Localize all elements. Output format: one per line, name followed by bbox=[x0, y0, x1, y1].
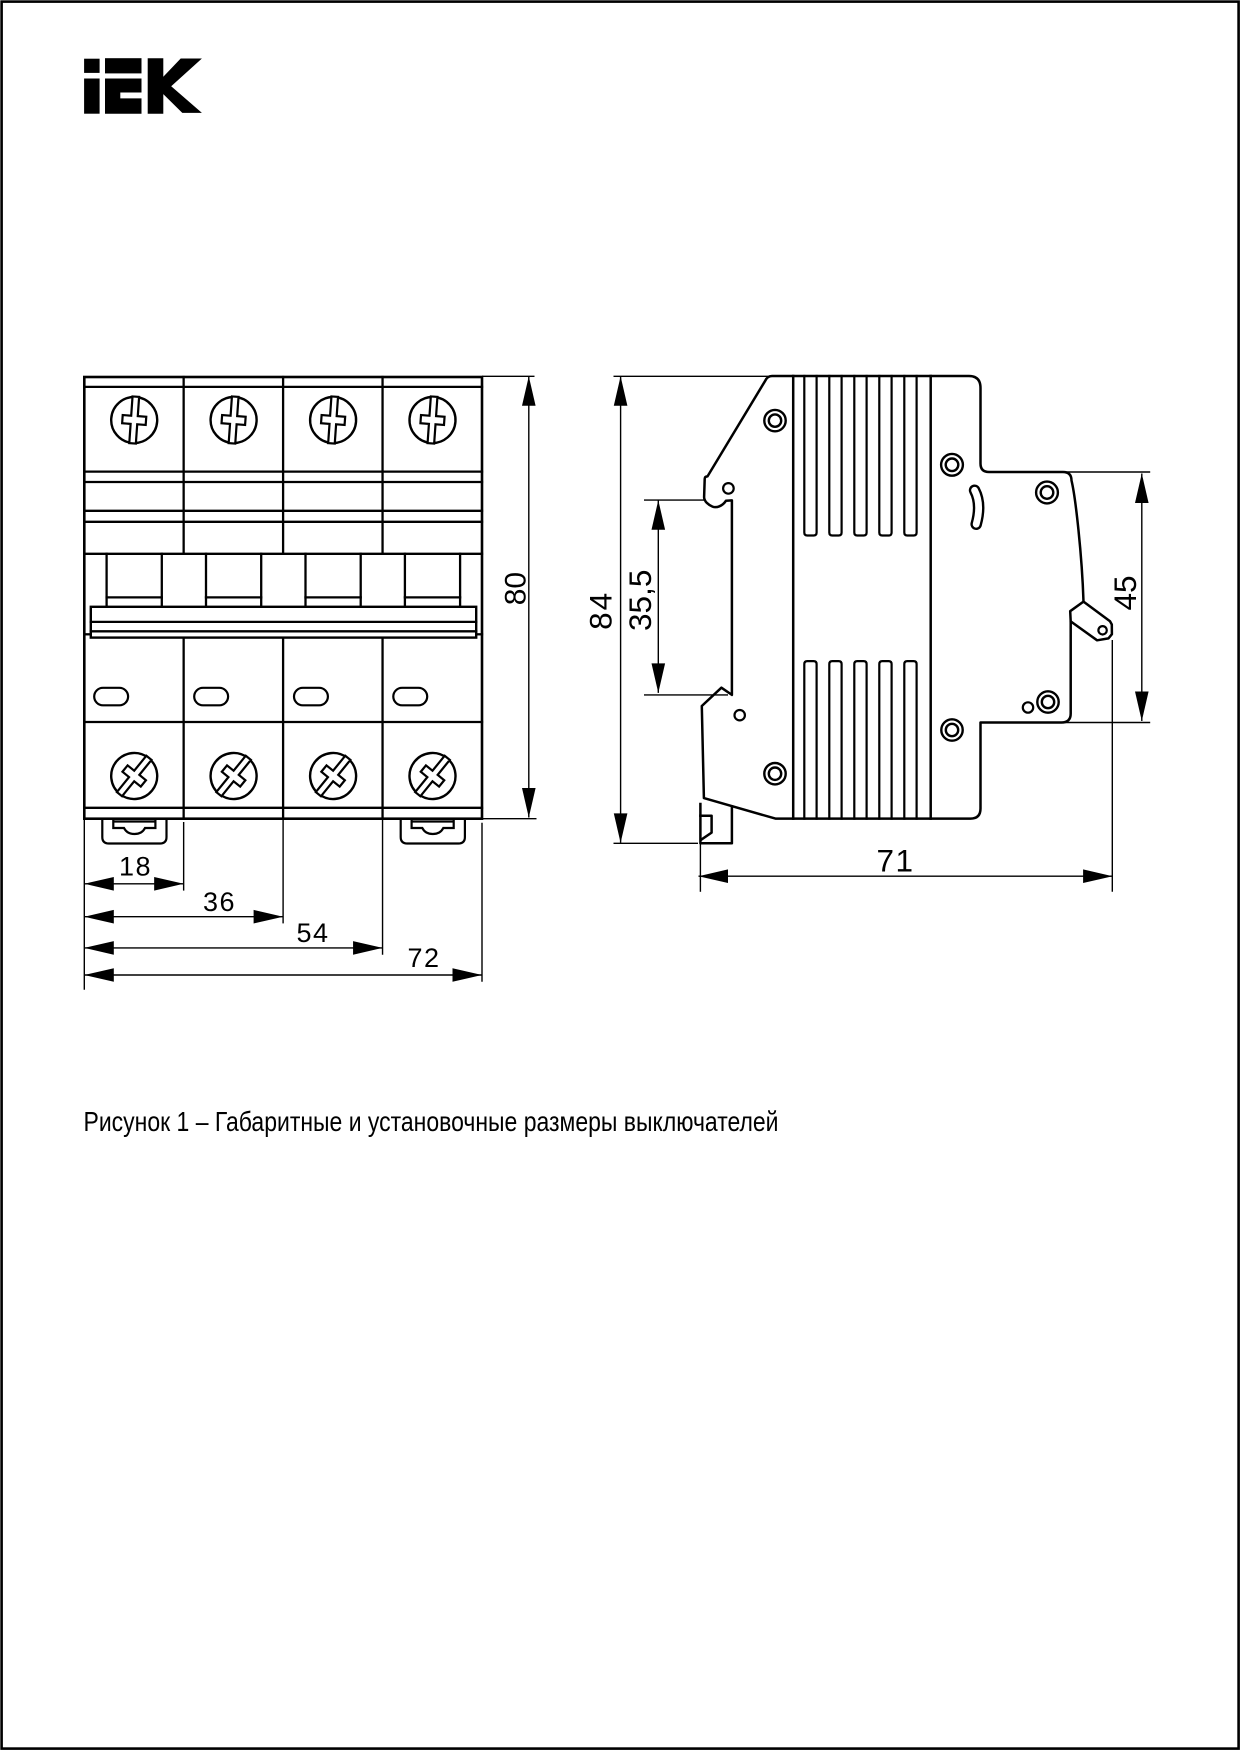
svg-text:18: 18 bbox=[119, 852, 152, 882]
svg-text:71: 71 bbox=[876, 843, 914, 879]
svg-text:54: 54 bbox=[296, 918, 329, 948]
svg-text:Рисунок 1 – Габаритные и устан: Рисунок 1 – Габаритные и установочные ра… bbox=[84, 1106, 779, 1137]
svg-text:80: 80 bbox=[500, 572, 533, 605]
svg-text:72: 72 bbox=[407, 943, 440, 973]
svg-text:35,5: 35,5 bbox=[622, 570, 658, 631]
svg-text:84: 84 bbox=[583, 591, 619, 630]
svg-text:36: 36 bbox=[203, 887, 236, 917]
svg-text:45: 45 bbox=[1107, 575, 1143, 610]
